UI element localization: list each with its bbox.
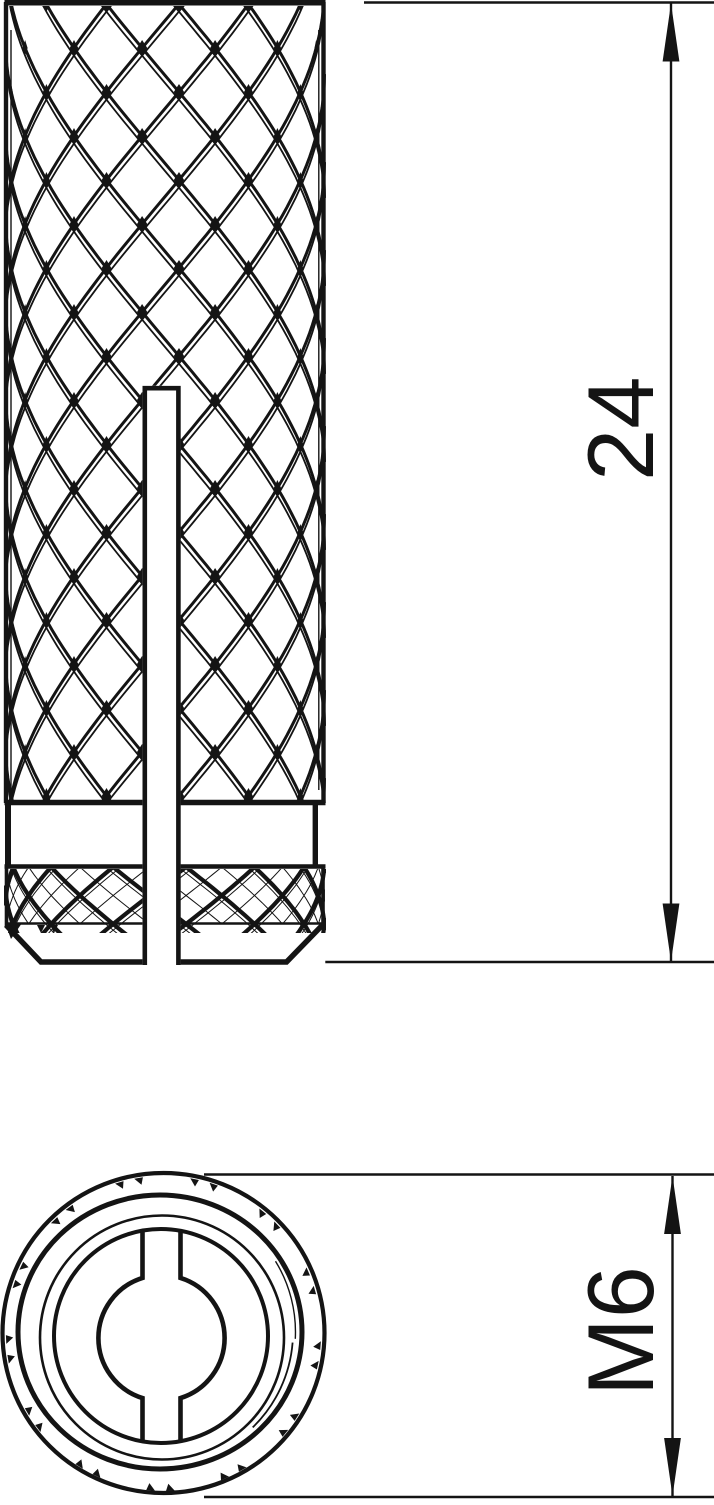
svg-text:24: 24 (568, 376, 673, 481)
svg-text:M6: M6 (568, 1266, 673, 1396)
